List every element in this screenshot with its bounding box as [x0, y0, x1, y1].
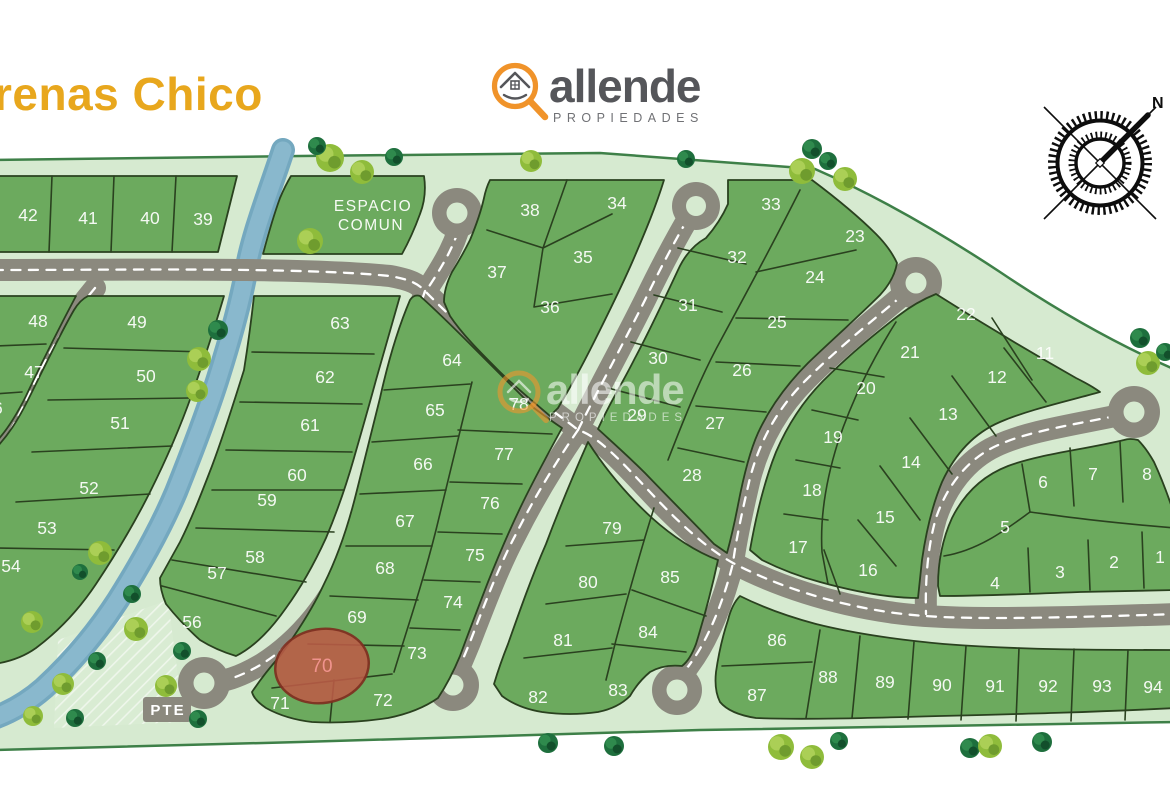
lot-63[interactable]: 63 [330, 313, 349, 333]
lot-88[interactable]: 88 [818, 667, 837, 687]
lot-93[interactable]: 93 [1092, 676, 1111, 696]
lot-74[interactable]: 74 [443, 592, 463, 612]
lot-50[interactable]: 50 [136, 366, 156, 386]
lot-82[interactable]: 82 [528, 687, 547, 707]
tree-icon [123, 585, 141, 603]
development-title: renas Chico [0, 68, 263, 120]
lot-52[interactable]: 52 [79, 478, 98, 498]
lot-40[interactable]: 40 [140, 208, 160, 228]
lot-35[interactable]: 35 [573, 247, 592, 267]
lot-81[interactable]: 81 [553, 630, 572, 650]
lot-61[interactable]: 61 [300, 415, 319, 435]
lot-38[interactable]: 38 [520, 200, 539, 220]
lot-21[interactable]: 21 [900, 342, 919, 362]
tree-icon [173, 642, 191, 660]
lot-49[interactable]: 49 [127, 312, 146, 332]
lot-31[interactable]: 31 [678, 295, 697, 315]
lot-17[interactable]: 17 [788, 537, 807, 557]
lot-4[interactable]: 4 [990, 573, 1000, 593]
lot-34[interactable]: 34 [607, 193, 627, 213]
brand-subtitle: PROPIEDADES [553, 111, 704, 125]
tree-icon [677, 150, 695, 168]
tree-icon [187, 347, 211, 371]
lot-91[interactable]: 91 [985, 676, 1004, 696]
lot-32[interactable]: 32 [727, 247, 746, 267]
lot-94[interactable]: 94 [1143, 677, 1163, 697]
lot-27[interactable]: 27 [705, 413, 724, 433]
tree-icon [800, 745, 824, 769]
lot-6[interactable]: 6 [1038, 472, 1048, 492]
tree-icon [960, 738, 980, 758]
lot-68[interactable]: 68 [375, 558, 394, 578]
tree-icon [350, 160, 374, 184]
lot-72[interactable]: 72 [373, 690, 392, 710]
tree-icon [88, 652, 106, 670]
tree-icon [520, 150, 542, 172]
lot-69[interactable]: 69 [347, 607, 366, 627]
lot-47[interactable]: 47 [24, 362, 43, 382]
lot-19[interactable]: 19 [823, 427, 842, 447]
lot-66[interactable]: 66 [413, 454, 432, 474]
lot-62[interactable]: 62 [315, 367, 334, 387]
tree-icon [72, 564, 88, 580]
lot-86[interactable]: 86 [767, 630, 786, 650]
lot-64[interactable]: 64 [442, 350, 462, 370]
lot-14[interactable]: 14 [901, 452, 921, 472]
brand-logo: allende PROPIEDADES [495, 60, 704, 125]
brand-name: allende [549, 60, 701, 112]
lot-39[interactable]: 39 [193, 209, 212, 229]
lot-2[interactable]: 2 [1109, 552, 1119, 572]
svg-text:allende: allende [546, 366, 684, 413]
compass-rose-icon: N [1044, 95, 1164, 219]
tree-icon [186, 380, 208, 402]
lot-7[interactable]: 7 [1088, 464, 1098, 484]
tree-icon [66, 709, 84, 727]
north-label: N [1152, 95, 1164, 112]
lot-37[interactable]: 37 [487, 262, 506, 282]
lot-3[interactable]: 3 [1055, 562, 1065, 582]
lot-89[interactable]: 89 [875, 672, 894, 692]
tree-icon [23, 706, 43, 726]
tree-icon [1032, 732, 1052, 752]
lot-11[interactable]: 11 [1036, 343, 1054, 363]
tree-icon [189, 710, 207, 728]
lot-65[interactable]: 65 [425, 400, 444, 420]
lot-90[interactable]: 90 [932, 675, 952, 695]
lot-22[interactable]: 22 [956, 304, 975, 324]
lot-18[interactable]: 18 [802, 480, 821, 500]
lot-80[interactable]: 80 [578, 572, 598, 592]
lot-77[interactable]: 77 [494, 444, 513, 464]
lot-59[interactable]: 59 [257, 490, 276, 510]
tree-icon [802, 139, 822, 159]
common-area-label-line1: ESPACIO [334, 198, 412, 215]
lot-51[interactable]: 51 [110, 413, 129, 433]
lot-15[interactable]: 15 [875, 507, 894, 527]
lot-54[interactable]: 54 [1, 556, 21, 576]
tree-icon [830, 732, 848, 750]
lot-42[interactable]: 42 [18, 205, 37, 225]
tree-icon [978, 734, 1002, 758]
tree-icon [155, 675, 177, 697]
tree-icon [833, 167, 857, 191]
tree-icon [1130, 328, 1150, 348]
tree-icon [604, 736, 624, 756]
lot-56[interactable]: 56 [182, 612, 201, 632]
lot-20[interactable]: 20 [856, 378, 876, 398]
svg-text:PTE: PTE [150, 702, 185, 719]
lot-25[interactable]: 25 [767, 312, 786, 332]
lot-24[interactable]: 24 [805, 267, 825, 287]
tree-icon [308, 137, 326, 155]
bridge-label: PTE [143, 697, 191, 722]
subdivision-map: ESPACIO COMUN PTE 1234567811121314151617… [0, 0, 1170, 785]
lot-83[interactable]: 83 [608, 680, 627, 700]
lot-53[interactable]: 53 [37, 518, 56, 538]
tree-icon [297, 228, 323, 254]
lot-48[interactable]: 48 [28, 311, 47, 331]
tree-icon [385, 148, 403, 166]
tree-icon [208, 320, 228, 340]
lot-87[interactable]: 87 [747, 685, 766, 705]
tree-icon [538, 733, 558, 753]
lot-23[interactable]: 23 [845, 226, 864, 246]
lot-67[interactable]: 67 [395, 511, 414, 531]
tree-icon [52, 673, 74, 695]
lot-79[interactable]: 79 [602, 518, 621, 538]
svg-text:PROPIEDADES: PROPIEDADES [549, 412, 687, 424]
lot-12[interactable]: 12 [987, 367, 1006, 387]
lot-30[interactable]: 30 [648, 348, 668, 368]
lot-76[interactable]: 76 [480, 493, 499, 513]
lot-70[interactable]: 70 [311, 656, 332, 677]
lot-8[interactable]: 8 [1142, 464, 1152, 484]
lot-58[interactable]: 58 [245, 547, 264, 567]
tree-icon [88, 541, 112, 565]
subdivision-map-page: ESPACIO COMUN PTE 1234567811121314151617… [0, 0, 1170, 785]
lot-75[interactable]: 75 [465, 545, 484, 565]
lot-84[interactable]: 84 [638, 622, 658, 642]
tree-icon [768, 734, 794, 760]
tree-icon [789, 158, 815, 184]
lot-16[interactable]: 16 [858, 560, 877, 580]
lot-26[interactable]: 26 [732, 360, 751, 380]
lot-46[interactable]: 46 [0, 398, 3, 418]
lot-13[interactable]: 13 [938, 404, 957, 424]
tree-icon [124, 617, 148, 641]
lot-73[interactable]: 73 [407, 643, 426, 663]
lot-85[interactable]: 85 [660, 567, 679, 587]
lot-41[interactable]: 41 [78, 208, 97, 228]
common-area-parcel [263, 176, 425, 254]
lot-33[interactable]: 33 [761, 194, 780, 214]
lot-92[interactable]: 92 [1038, 676, 1057, 696]
lot-36[interactable]: 36 [540, 297, 559, 317]
lot-71[interactable]: 71 [270, 693, 289, 713]
tree-icon [819, 152, 837, 170]
magnifier-house-icon [495, 66, 546, 118]
common-area-label-line2: COMUN [338, 217, 404, 234]
lot-57[interactable]: 57 [207, 563, 226, 583]
lot-5[interactable]: 5 [1000, 517, 1010, 537]
lot-60[interactable]: 60 [287, 465, 307, 485]
lot-1[interactable]: 1 [1155, 547, 1165, 567]
lot-28[interactable]: 28 [682, 465, 701, 485]
tree-icon [21, 611, 43, 633]
